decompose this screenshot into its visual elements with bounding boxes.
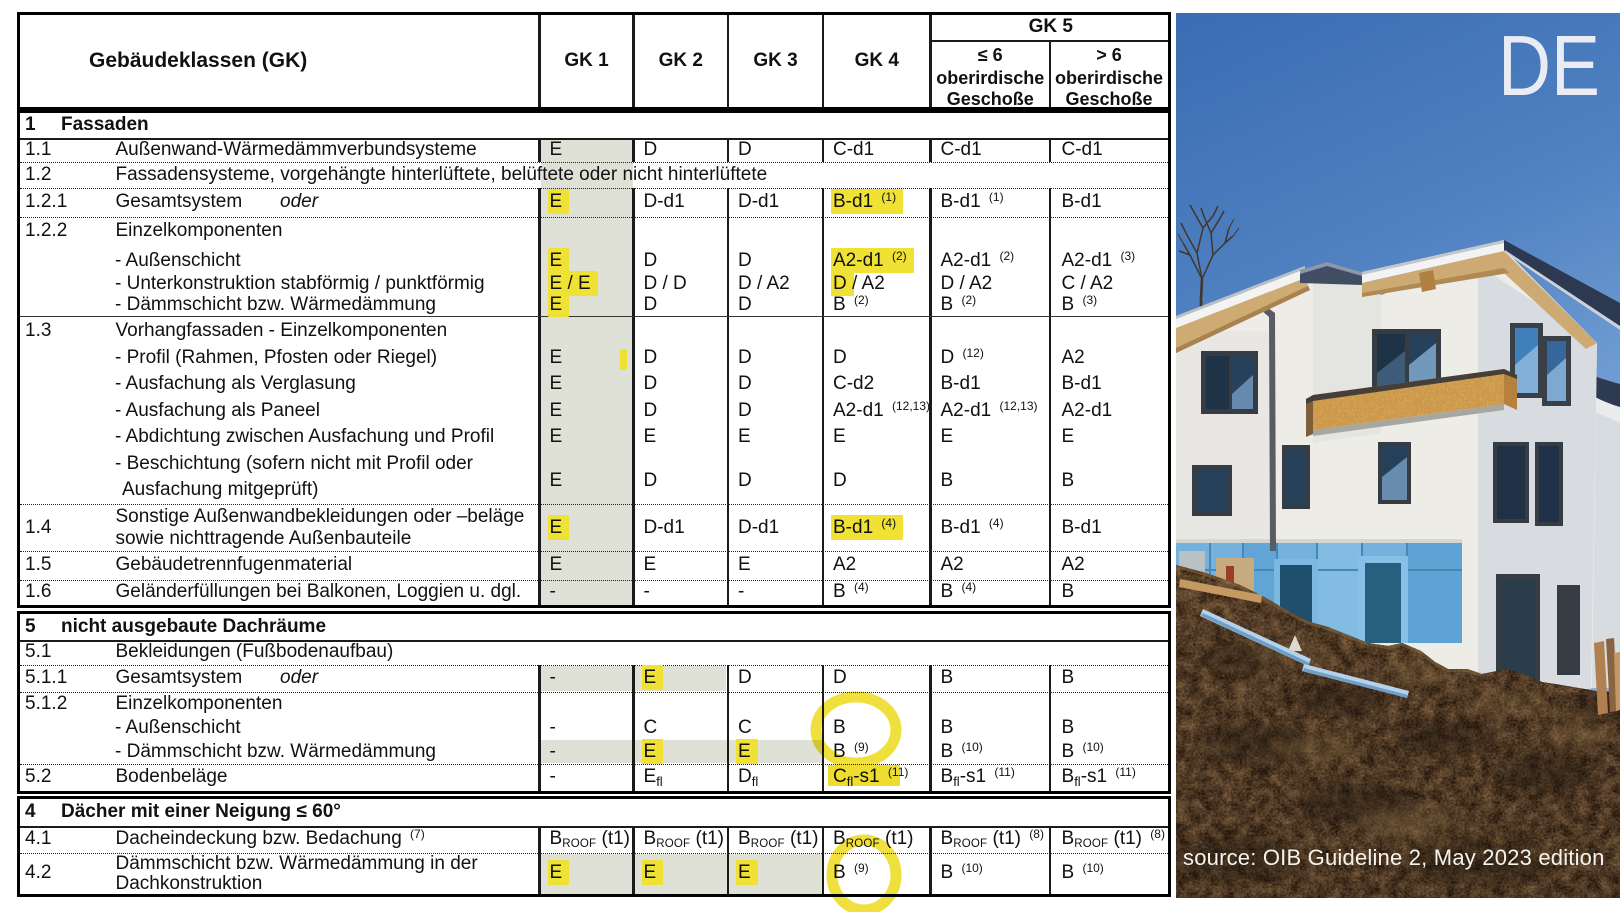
svg-text:DE: DE	[1498, 19, 1600, 114]
svg-text:source: OIB Guideline 2, May 2: source: OIB Guideline 2, May 2023 editio…	[1183, 845, 1605, 870]
